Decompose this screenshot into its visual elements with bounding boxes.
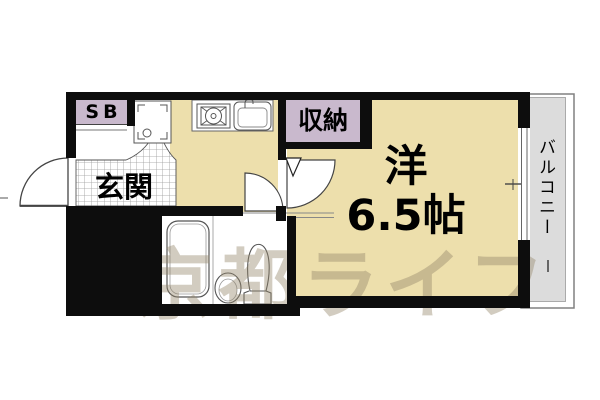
entrance-label: 玄関: [76, 173, 172, 202]
floorplan: 京都ライフ SB 玄関 収納 洋 6.5帖 バルコニー: [0, 0, 600, 400]
closet-label: 収納: [286, 108, 360, 133]
main-room-label: 洋 6.5帖: [300, 146, 512, 238]
main-room-size: 6.5帖: [300, 195, 512, 238]
shoe-box-label: SB: [76, 103, 127, 122]
main-room-type: 洋: [300, 146, 512, 189]
balcony-label: バルコニー: [529, 138, 561, 314]
